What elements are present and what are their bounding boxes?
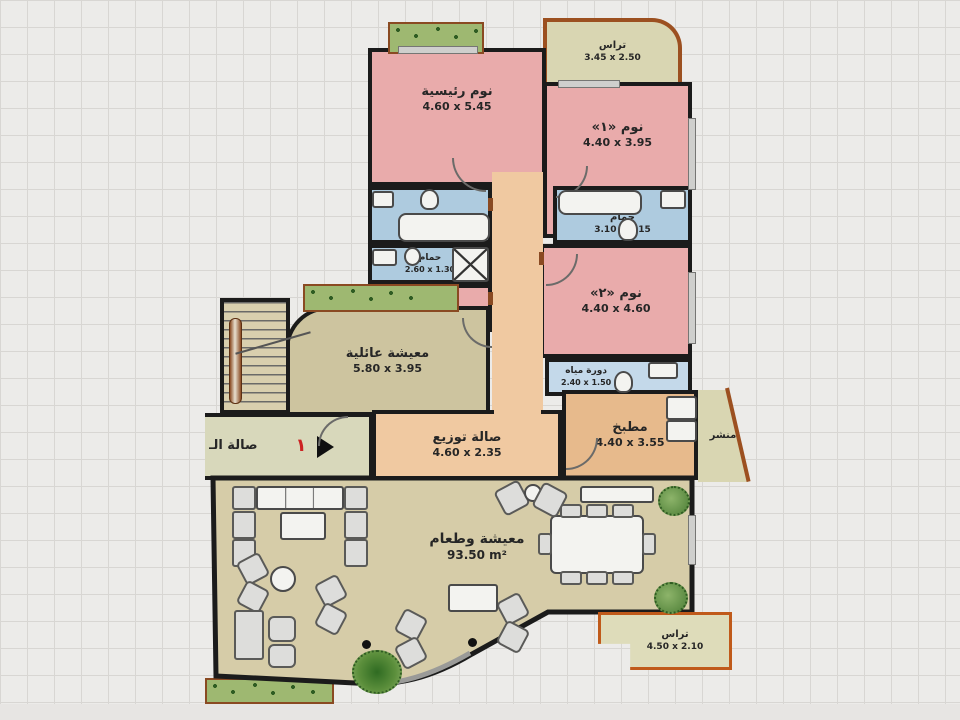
kitchen-sink-icon — [666, 420, 697, 442]
toilet-icon — [618, 218, 638, 241]
room-family-living: معيشة عائلية 5.80 x 3.95 — [285, 306, 490, 416]
window — [688, 515, 696, 565]
floor-plan-canvas: تراس 3.45 x 2.50 نوم رئيسية 4.60 x 5.45 … — [0, 0, 960, 720]
bathtub-icon — [558, 190, 642, 215]
planter-left — [303, 284, 459, 312]
room-name: معيشة عائلية — [346, 346, 429, 362]
window — [688, 118, 696, 190]
dining-chair — [560, 504, 582, 518]
armchair — [344, 539, 368, 567]
room-name: دورة مياه — [561, 366, 611, 377]
room-name: نوم رئيسية — [421, 84, 492, 100]
door-jamb — [488, 292, 493, 305]
window — [688, 272, 696, 344]
dining-table — [550, 515, 644, 574]
room-name: معيشة وطعام — [397, 530, 557, 548]
wall-segment — [541, 410, 562, 414]
toilet-icon — [614, 371, 633, 393]
staircase — [220, 298, 290, 414]
sofa — [256, 486, 344, 510]
coffee-table — [448, 584, 498, 612]
bathtub-icon — [398, 213, 490, 242]
window — [398, 46, 478, 54]
dining-chair — [586, 504, 608, 518]
sink-icon — [372, 191, 394, 208]
room-dims: 2.40 x 1.50 — [561, 378, 611, 388]
dining-chair — [642, 533, 656, 555]
room-name: مطبخ — [612, 420, 647, 436]
door-jamb — [539, 252, 544, 265]
sink-icon — [372, 249, 397, 266]
room-name: نوم «١» — [592, 120, 644, 136]
floor-dot — [362, 640, 371, 649]
room-dims: 3.45 x 2.50 — [584, 53, 640, 64]
toilet-icon — [404, 247, 421, 266]
dining-chair — [586, 571, 608, 585]
room-name: منشر — [710, 430, 737, 443]
room-terrace-bottom: تراس 4.50 x 2.10 — [598, 612, 732, 670]
palm-icon — [352, 650, 402, 694]
shrub-icon — [654, 582, 688, 614]
round-table — [270, 566, 296, 592]
armchair — [268, 644, 296, 668]
room-dims: 2.60 x 1.30 — [405, 265, 455, 275]
stair-handrail — [229, 318, 242, 404]
floor-dot — [468, 638, 477, 647]
sink-icon — [648, 362, 678, 379]
armchair — [495, 619, 530, 654]
coffee-table — [280, 512, 326, 540]
shrub-icon — [658, 486, 690, 516]
console-table — [580, 486, 654, 503]
room-name: حمام — [419, 253, 442, 264]
toilet-icon — [420, 189, 439, 210]
dining-chair — [560, 571, 582, 585]
page-margin — [0, 704, 960, 720]
room-name: صالة الـ — [209, 438, 258, 454]
sink-icon — [660, 190, 686, 209]
room-name: تراس — [661, 629, 688, 642]
shower-icon — [452, 247, 489, 282]
room-name: نوم «٢» — [590, 286, 642, 302]
window — [558, 80, 620, 88]
door-jamb — [488, 198, 493, 211]
room-name: صالة توزيع — [432, 430, 501, 446]
room-dims: 4.40 x 3.95 — [583, 136, 652, 150]
stove-icon — [666, 396, 697, 420]
room-dims: 93.50 m² — [397, 548, 557, 564]
room-drying: منشر — [698, 390, 748, 482]
room-terrace-top: تراس 3.45 x 2.50 — [543, 18, 682, 86]
room-dims: 4.60 x 2.35 — [432, 446, 501, 460]
room-distribution-hall: صالة توزيع 4.60 x 2.35 — [372, 413, 562, 480]
corridor — [492, 172, 543, 416]
armchair — [344, 511, 368, 539]
room-dims: 4.40 x 4.60 — [581, 302, 650, 316]
room-dims: 5.80 x 3.95 — [353, 362, 422, 376]
dining-chair — [612, 504, 634, 518]
wall-segment — [372, 410, 494, 414]
side-table — [344, 486, 368, 510]
room-dims: 4.50 x 2.10 — [647, 642, 703, 653]
armchair — [268, 616, 296, 642]
planter-bottom — [205, 678, 334, 704]
entrance-number: ١ — [296, 435, 307, 458]
armchair — [232, 511, 256, 539]
room-name: تراس — [599, 40, 626, 53]
room-living-dining-label: معيشة وطعام 93.50 m² — [397, 530, 557, 564]
room-dims: 4.60 x 5.45 — [422, 100, 491, 114]
tv-unit — [234, 610, 264, 660]
armchair — [313, 601, 348, 636]
room-dims: 4.40 x 3.55 — [595, 436, 664, 450]
side-table — [232, 486, 256, 510]
dining-chair — [612, 571, 634, 585]
